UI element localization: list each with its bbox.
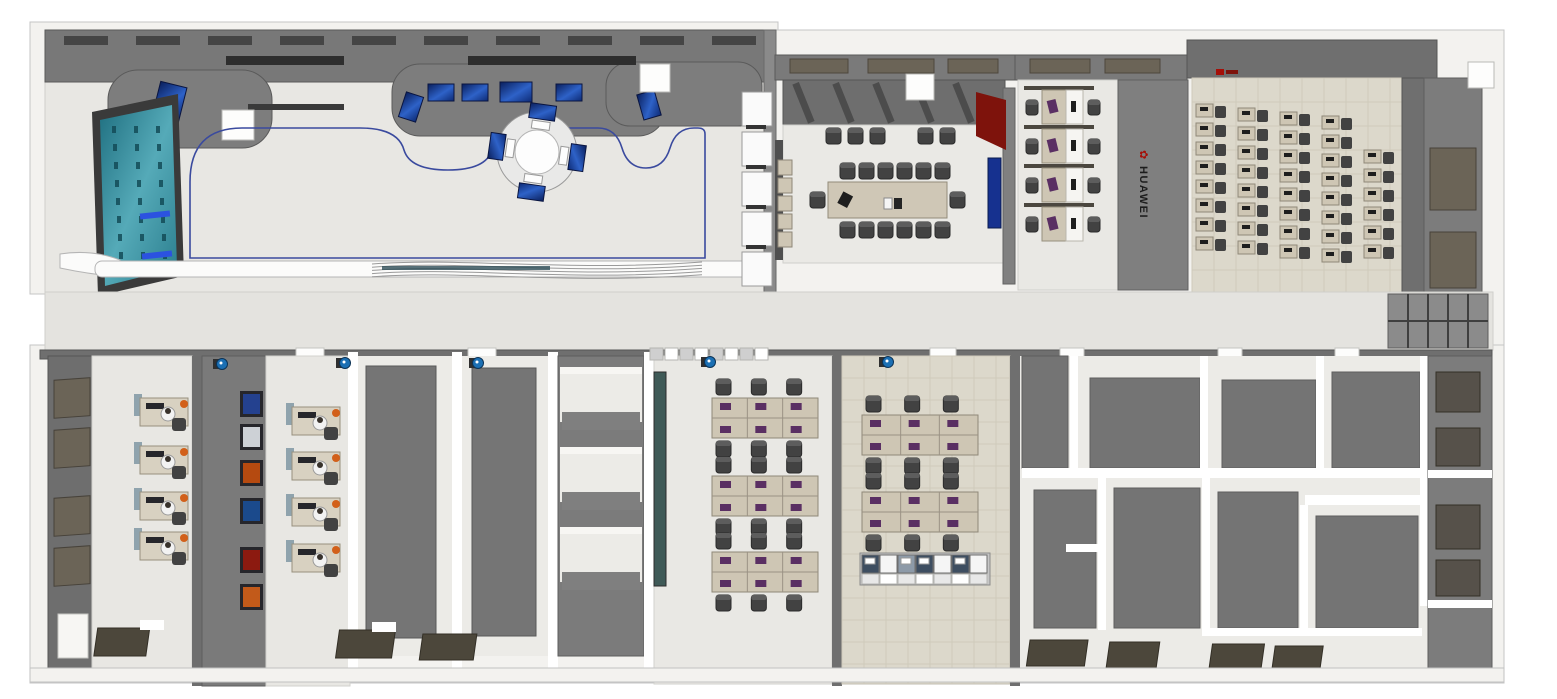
caption-strip bbox=[226, 56, 344, 65]
monitor-icon bbox=[1200, 183, 1208, 187]
chair bbox=[1299, 190, 1310, 202]
chair bbox=[1341, 194, 1352, 206]
partition-wall bbox=[1300, 505, 1308, 630]
chair-back bbox=[716, 519, 731, 524]
chair-back bbox=[716, 595, 731, 600]
compartment-wall bbox=[562, 412, 640, 430]
chair bbox=[1383, 171, 1394, 183]
artwork bbox=[243, 463, 260, 483]
orange-accent bbox=[332, 454, 340, 462]
ceiling-slot bbox=[136, 36, 180, 45]
window-pane bbox=[54, 496, 90, 537]
training-east-wall bbox=[1402, 78, 1424, 294]
exhibition-hall bbox=[45, 30, 776, 296]
partition-wall bbox=[1316, 356, 1324, 468]
chair-back bbox=[935, 222, 950, 227]
chair-back bbox=[751, 457, 766, 462]
window-sill bbox=[372, 622, 396, 632]
window-sill bbox=[140, 620, 164, 630]
room-wall-slab bbox=[1022, 356, 1068, 468]
monitor-icon bbox=[1200, 164, 1208, 168]
ceiling-slot bbox=[352, 36, 396, 45]
kiosk-screen-icon bbox=[529, 103, 557, 121]
monitor-icon bbox=[1284, 153, 1292, 157]
alcove-screen-icon bbox=[462, 84, 488, 101]
table-gadget bbox=[894, 198, 902, 209]
compartment-wall bbox=[562, 572, 640, 590]
monitor-icon bbox=[870, 443, 881, 450]
chair-back bbox=[878, 163, 893, 168]
monitor-icon bbox=[1284, 248, 1292, 252]
chair-back bbox=[1026, 139, 1038, 144]
product-dot bbox=[135, 144, 139, 151]
floorplan-render: ✿ HUAWEI bbox=[0, 0, 1557, 699]
room-wall-slab bbox=[1090, 378, 1200, 468]
monitor-icon bbox=[1200, 126, 1208, 130]
ceiling-slot bbox=[640, 36, 684, 45]
monitor-icon bbox=[791, 426, 802, 433]
chair-back bbox=[918, 128, 933, 133]
product-dot bbox=[158, 162, 162, 169]
chair-back bbox=[1088, 100, 1100, 105]
cubicle-office: ✿ HUAWEI bbox=[1015, 55, 1188, 290]
monitor-icon bbox=[909, 497, 920, 504]
display-case bbox=[742, 92, 772, 126]
chair bbox=[1341, 156, 1352, 168]
lab-bench-front bbox=[934, 574, 951, 584]
monitor-icon bbox=[1284, 172, 1292, 176]
chair-back bbox=[943, 396, 958, 401]
lab-bench-front bbox=[862, 574, 879, 584]
chair bbox=[324, 564, 338, 577]
conference-room bbox=[775, 55, 1015, 284]
monitor-icon bbox=[791, 557, 802, 564]
ceiling-slot bbox=[424, 36, 468, 45]
entry-block bbox=[755, 348, 768, 360]
chair-back bbox=[916, 222, 931, 227]
chair-back bbox=[1088, 139, 1100, 144]
chair-back bbox=[905, 396, 920, 401]
monitor-icon bbox=[755, 426, 766, 433]
room-wall-slab bbox=[1222, 380, 1316, 468]
monitor-icon bbox=[146, 497, 164, 503]
product-dot bbox=[156, 126, 160, 133]
chair-back bbox=[940, 128, 955, 133]
monitor-icon bbox=[1326, 195, 1334, 199]
monitor-icon bbox=[298, 412, 316, 418]
chair-back bbox=[751, 441, 766, 446]
product-dot bbox=[136, 162, 140, 169]
monitor-icon bbox=[1200, 240, 1208, 244]
alcove-screen-icon bbox=[500, 82, 532, 102]
monitor-icon bbox=[791, 504, 802, 511]
lab-bench-segment bbox=[934, 555, 951, 573]
product-dot bbox=[114, 162, 118, 169]
conference-tv-screen bbox=[988, 158, 1001, 228]
chair bbox=[1383, 152, 1394, 164]
monitor-icon bbox=[1242, 244, 1250, 248]
corridor-gap bbox=[1305, 495, 1423, 505]
monitor-icon bbox=[146, 537, 164, 543]
shelf-band bbox=[560, 447, 642, 454]
partition-wall bbox=[644, 352, 654, 672]
chair bbox=[172, 552, 186, 565]
chair bbox=[1215, 182, 1226, 194]
chair-back bbox=[751, 379, 766, 384]
chair-back bbox=[916, 163, 931, 168]
huawei-flower-icon: ✿ bbox=[1137, 150, 1149, 159]
chair bbox=[172, 418, 186, 431]
chair bbox=[1341, 232, 1352, 244]
shelf-unit bbox=[778, 160, 792, 175]
chair-back bbox=[866, 458, 881, 463]
partition-wall bbox=[1428, 600, 1492, 608]
window-pane bbox=[1209, 644, 1265, 670]
monitor-icon bbox=[947, 443, 958, 450]
person-head bbox=[317, 417, 323, 423]
huawei-sign-small bbox=[1226, 70, 1238, 74]
monitor-icon bbox=[1242, 149, 1250, 153]
ceiling-slot bbox=[568, 36, 612, 45]
monitor-icon bbox=[720, 557, 731, 564]
display-case bbox=[742, 172, 772, 206]
chair-back bbox=[943, 535, 958, 540]
partition-wall bbox=[1202, 628, 1422, 636]
compartment-wall bbox=[562, 492, 640, 510]
entry-block bbox=[665, 348, 678, 360]
product-dot bbox=[112, 126, 116, 133]
product-dot bbox=[117, 216, 121, 223]
window-pane bbox=[1436, 372, 1480, 412]
orange-accent bbox=[332, 409, 340, 417]
orange-accent bbox=[180, 494, 188, 502]
chair bbox=[1383, 247, 1394, 259]
huawei-sign-small bbox=[1216, 69, 1224, 75]
central-corridor bbox=[45, 292, 1493, 350]
monitor-icon bbox=[909, 443, 920, 450]
shelf-unit bbox=[778, 196, 792, 211]
artwork bbox=[243, 550, 260, 570]
window-pane bbox=[94, 628, 150, 656]
room-wall-slab bbox=[1316, 516, 1418, 628]
entry-block bbox=[650, 348, 663, 360]
camera-glint bbox=[708, 360, 711, 363]
window-pane bbox=[1106, 642, 1160, 668]
room-wall-slab bbox=[1114, 488, 1200, 628]
chair bbox=[1215, 144, 1226, 156]
partition-wall bbox=[1200, 356, 1208, 468]
artwork bbox=[243, 587, 260, 607]
chair-back bbox=[840, 222, 855, 227]
window-pane bbox=[1436, 428, 1480, 466]
window-pane bbox=[1105, 59, 1160, 73]
cubicle-partition bbox=[1024, 86, 1094, 90]
chair-back bbox=[787, 379, 802, 384]
chair bbox=[1215, 239, 1226, 251]
product-dot bbox=[134, 126, 138, 133]
kiosk-table bbox=[515, 130, 559, 174]
monitor-icon bbox=[298, 457, 316, 463]
column bbox=[58, 614, 88, 658]
ceiling-slot bbox=[712, 36, 756, 45]
chair-back bbox=[751, 595, 766, 600]
monitor-icon bbox=[1242, 111, 1250, 115]
chair bbox=[1215, 220, 1226, 232]
partition-wall bbox=[548, 352, 558, 672]
product-dot bbox=[115, 180, 119, 187]
window-pane bbox=[54, 428, 90, 469]
table-gadget bbox=[884, 198, 892, 209]
person-head bbox=[317, 554, 323, 560]
column bbox=[1468, 62, 1494, 88]
partition-wall bbox=[1420, 356, 1428, 606]
chair-back bbox=[787, 457, 802, 462]
ceiling-slot bbox=[280, 36, 324, 45]
person-head bbox=[317, 462, 323, 468]
window-pane bbox=[790, 59, 848, 73]
lab-device bbox=[865, 558, 875, 564]
person-head bbox=[165, 456, 171, 462]
chair bbox=[1257, 224, 1268, 236]
chair-back bbox=[859, 222, 874, 227]
chair bbox=[1257, 129, 1268, 141]
chair-back bbox=[1088, 178, 1100, 183]
chair bbox=[172, 512, 186, 525]
monitor-icon bbox=[947, 497, 958, 504]
chair bbox=[1299, 171, 1310, 183]
product-dot bbox=[138, 198, 142, 205]
monitor-icon bbox=[1071, 179, 1076, 190]
lab-bench-segment bbox=[880, 555, 897, 573]
chair bbox=[1383, 190, 1394, 202]
shelf-unit bbox=[778, 178, 792, 193]
window-pane bbox=[54, 546, 90, 587]
monitor-icon bbox=[1071, 218, 1076, 229]
shelf-unit bbox=[778, 232, 792, 247]
window-pane bbox=[1436, 560, 1480, 596]
monitor-icon bbox=[1242, 206, 1250, 210]
column bbox=[640, 64, 670, 92]
chair-back bbox=[943, 458, 958, 463]
chair bbox=[172, 466, 186, 479]
monitor-icon bbox=[870, 520, 881, 527]
training-north-wall bbox=[1187, 40, 1437, 78]
team-office-large-benches bbox=[712, 379, 818, 611]
window-pane bbox=[336, 630, 396, 658]
exterior-south-wall bbox=[30, 668, 1504, 682]
caption-strip bbox=[468, 56, 636, 65]
camera-glint bbox=[476, 361, 479, 364]
person-head bbox=[165, 542, 171, 548]
monitor-icon bbox=[947, 420, 958, 427]
window-pane bbox=[1272, 646, 1323, 670]
chair bbox=[324, 427, 338, 440]
lab-bench bbox=[860, 553, 990, 585]
entry-block bbox=[725, 348, 738, 360]
partition-wall bbox=[1098, 478, 1106, 630]
shelf-unit bbox=[778, 214, 792, 229]
alcove-screen-icon bbox=[556, 84, 582, 101]
lab-bench-front bbox=[880, 574, 897, 584]
huawei-logo-text: HUAWEI bbox=[1137, 166, 1149, 219]
chair bbox=[1257, 205, 1268, 217]
room-wall-slab bbox=[1218, 492, 1298, 628]
lab-bench-front bbox=[970, 574, 987, 584]
chair bbox=[1341, 213, 1352, 225]
lab-device bbox=[919, 558, 929, 564]
display-case-tick bbox=[746, 125, 766, 129]
chair-back bbox=[716, 441, 731, 446]
product-dot bbox=[159, 180, 163, 187]
monitor-icon bbox=[1071, 140, 1076, 151]
ceiling-slot bbox=[496, 36, 540, 45]
monitor-icon bbox=[1368, 229, 1376, 233]
chair bbox=[324, 518, 338, 531]
chair-back bbox=[1026, 217, 1038, 222]
monitor-icon bbox=[1284, 115, 1292, 119]
chair-back bbox=[751, 533, 766, 538]
product-dot bbox=[160, 198, 164, 205]
monitor-icon bbox=[791, 481, 802, 488]
monitor-icon bbox=[870, 420, 881, 427]
orange-accent bbox=[180, 400, 188, 408]
chair bbox=[1341, 175, 1352, 187]
monitor-icon bbox=[1242, 187, 1250, 191]
chair-back bbox=[787, 533, 802, 538]
monitor-icon bbox=[1071, 101, 1076, 112]
monitor-icon bbox=[1326, 176, 1334, 180]
chair bbox=[1215, 106, 1226, 118]
entry-block bbox=[740, 348, 753, 360]
partition-wall bbox=[452, 352, 462, 672]
monitor-icon bbox=[755, 481, 766, 488]
kiosk-screen-icon bbox=[517, 183, 545, 201]
camera-glint bbox=[886, 360, 889, 363]
product-dot bbox=[140, 234, 144, 241]
column bbox=[222, 110, 254, 140]
south-wing bbox=[40, 348, 1492, 686]
partition-wall bbox=[1070, 356, 1078, 468]
monitor-icon bbox=[1368, 172, 1376, 176]
chair-back bbox=[787, 519, 802, 524]
chair bbox=[1299, 228, 1310, 240]
chair-back bbox=[787, 441, 802, 446]
chair-back bbox=[810, 192, 825, 197]
monitor-icon bbox=[720, 403, 731, 410]
window-pane bbox=[1026, 640, 1088, 666]
cubicle-partition bbox=[1024, 164, 1094, 168]
monitor-icon bbox=[1284, 191, 1292, 195]
monitor-icon bbox=[1326, 119, 1334, 123]
partition-wall bbox=[1428, 470, 1492, 478]
chair bbox=[1299, 247, 1310, 259]
chair bbox=[1383, 228, 1394, 240]
monitor-icon bbox=[298, 549, 316, 555]
chair bbox=[1257, 110, 1268, 122]
partition-wall bbox=[832, 356, 842, 686]
product-dot bbox=[118, 234, 122, 241]
artwork bbox=[243, 394, 260, 414]
chair-back bbox=[866, 535, 881, 540]
person-head bbox=[165, 408, 171, 414]
orange-accent bbox=[332, 500, 340, 508]
training-room bbox=[1187, 40, 1494, 294]
room-wall-slab bbox=[1034, 490, 1096, 628]
partition-wall bbox=[1010, 356, 1020, 686]
room-wall-slab bbox=[472, 368, 536, 636]
monitor-icon bbox=[1326, 233, 1334, 237]
monitor-icon bbox=[1242, 168, 1250, 172]
product-dot bbox=[113, 144, 117, 151]
chair bbox=[1341, 251, 1352, 263]
person-head bbox=[165, 502, 171, 508]
monitor-icon bbox=[1326, 214, 1334, 218]
artwork bbox=[243, 427, 260, 447]
monitor-icon bbox=[1368, 191, 1376, 195]
sculpture-glass bbox=[382, 266, 550, 270]
chair-back bbox=[787, 595, 802, 600]
product-dot bbox=[162, 234, 166, 241]
display-case-tick bbox=[746, 205, 766, 209]
chair bbox=[1299, 209, 1310, 221]
lab-bench-front bbox=[952, 574, 969, 584]
chair bbox=[324, 472, 338, 485]
monitor-icon bbox=[755, 504, 766, 511]
chair-back bbox=[840, 163, 855, 168]
window-pane bbox=[1436, 505, 1480, 549]
monitor-icon bbox=[720, 580, 731, 587]
monitor-icon bbox=[1200, 221, 1208, 225]
chair bbox=[1257, 243, 1268, 255]
product-dot bbox=[137, 180, 141, 187]
monitor-icon bbox=[755, 580, 766, 587]
monitor-icon bbox=[791, 403, 802, 410]
chair bbox=[1215, 201, 1226, 213]
corridor-floor bbox=[45, 292, 1493, 350]
window-pane bbox=[54, 378, 90, 419]
chair-back bbox=[716, 379, 731, 384]
chair-back bbox=[751, 519, 766, 524]
chair-back bbox=[935, 163, 950, 168]
storage-compartments bbox=[560, 367, 642, 590]
monitor-icon bbox=[1284, 134, 1292, 138]
display-alcove-3 bbox=[606, 62, 762, 126]
monitor-icon bbox=[1200, 145, 1208, 149]
orange-accent bbox=[180, 534, 188, 542]
chair-back bbox=[950, 192, 965, 197]
monitor-icon bbox=[146, 451, 164, 457]
shelf-band bbox=[560, 527, 642, 534]
window-pane bbox=[868, 59, 934, 73]
chair-back bbox=[716, 457, 731, 462]
chair bbox=[1257, 148, 1268, 160]
chair-back bbox=[897, 222, 912, 227]
chair-back bbox=[848, 128, 863, 133]
conference-shelves bbox=[778, 160, 792, 247]
chair bbox=[1257, 186, 1268, 198]
chair-back bbox=[859, 163, 874, 168]
monitor-icon bbox=[1200, 202, 1208, 206]
monitor-icon bbox=[1326, 157, 1334, 161]
conference-door bbox=[906, 74, 934, 100]
orange-accent bbox=[332, 546, 340, 554]
cubicle-partition bbox=[1024, 203, 1094, 207]
ceiling-slot bbox=[64, 36, 108, 45]
chair bbox=[1341, 137, 1352, 149]
artwork bbox=[243, 501, 260, 521]
chair bbox=[1215, 125, 1226, 137]
lab-bench-segment bbox=[970, 555, 987, 573]
